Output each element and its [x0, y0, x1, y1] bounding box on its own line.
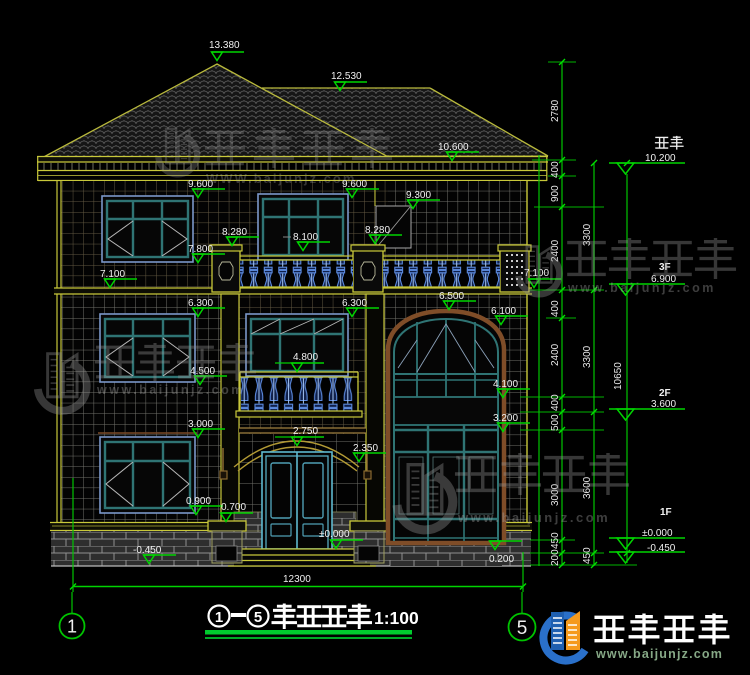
- svg-text:1:100: 1:100: [374, 608, 419, 628]
- svg-text:7.800: 7.800: [188, 244, 213, 255]
- svg-text:2400: 2400: [550, 343, 561, 366]
- svg-text:9.300: 9.300: [406, 190, 431, 201]
- svg-text:0.200: 0.200: [489, 554, 514, 565]
- svg-text:12300: 12300: [283, 574, 311, 585]
- svg-text:www.baijunjz.com: www.baijunjz.com: [567, 281, 716, 295]
- svg-text:13.380: 13.380: [209, 40, 240, 51]
- svg-text:WWW.baijunjz.com: WWW.baijunjz.com: [206, 171, 356, 186]
- svg-text:3.600: 3.600: [651, 399, 676, 410]
- svg-text:1: 1: [67, 617, 77, 637]
- svg-text:2.750: 2.750: [293, 426, 318, 437]
- svg-text:www.baijunjz.com: www.baijunjz.com: [96, 383, 245, 397]
- svg-text:10650: 10650: [613, 362, 624, 390]
- svg-text:10.600: 10.600: [438, 142, 469, 153]
- svg-text:400: 400: [550, 394, 561, 411]
- svg-text:6.300: 6.300: [342, 298, 367, 309]
- svg-text:3000: 3000: [550, 483, 561, 506]
- svg-text:10.200: 10.200: [645, 153, 676, 164]
- svg-text:2.350: 2.350: [353, 443, 378, 454]
- svg-text:www.baijunjz.com: www.baijunjz.com: [595, 647, 723, 661]
- svg-text:450: 450: [582, 547, 593, 564]
- svg-text:6.500: 6.500: [439, 291, 464, 302]
- svg-text:3300: 3300: [582, 345, 593, 368]
- svg-text:6.300: 6.300: [188, 298, 213, 309]
- svg-text:3.000: 3.000: [188, 419, 213, 430]
- svg-text:2780: 2780: [550, 99, 561, 122]
- svg-text:±0.000: ±0.000: [319, 529, 350, 540]
- svg-text:7.100: 7.100: [100, 269, 125, 280]
- svg-text:8.280: 8.280: [222, 227, 247, 238]
- svg-text:0.900: 0.900: [186, 496, 211, 507]
- svg-text:400: 400: [550, 161, 561, 178]
- svg-text:-0.450: -0.450: [133, 545, 162, 556]
- svg-text:2F: 2F: [659, 388, 671, 399]
- svg-text:3600: 3600: [582, 476, 593, 499]
- svg-text:8.100: 8.100: [293, 232, 318, 243]
- svg-text:900: 900: [550, 185, 561, 202]
- svg-text:450: 450: [550, 532, 561, 549]
- svg-text:1F: 1F: [660, 507, 672, 518]
- svg-text:5: 5: [517, 618, 528, 639]
- svg-text:500: 500: [550, 414, 561, 431]
- svg-text:3.200: 3.200: [493, 413, 518, 424]
- svg-text:±0.000: ±0.000: [642, 528, 673, 539]
- svg-text:4.800: 4.800: [293, 352, 318, 363]
- svg-text:200: 200: [550, 549, 561, 566]
- svg-text:-0.450: -0.450: [647, 543, 676, 554]
- svg-text:0.700: 0.700: [221, 502, 246, 513]
- svg-text:6.100: 6.100: [491, 306, 516, 317]
- svg-text:12.530: 12.530: [331, 71, 362, 82]
- svg-text:www.baijunjz.com: www.baijunjz.com: [457, 510, 610, 525]
- svg-text:5: 5: [254, 609, 262, 626]
- svg-text:400: 400: [550, 300, 561, 317]
- svg-text:4.100: 4.100: [493, 379, 518, 390]
- svg-text:1: 1: [215, 609, 223, 626]
- svg-text:8.280: 8.280: [365, 225, 390, 236]
